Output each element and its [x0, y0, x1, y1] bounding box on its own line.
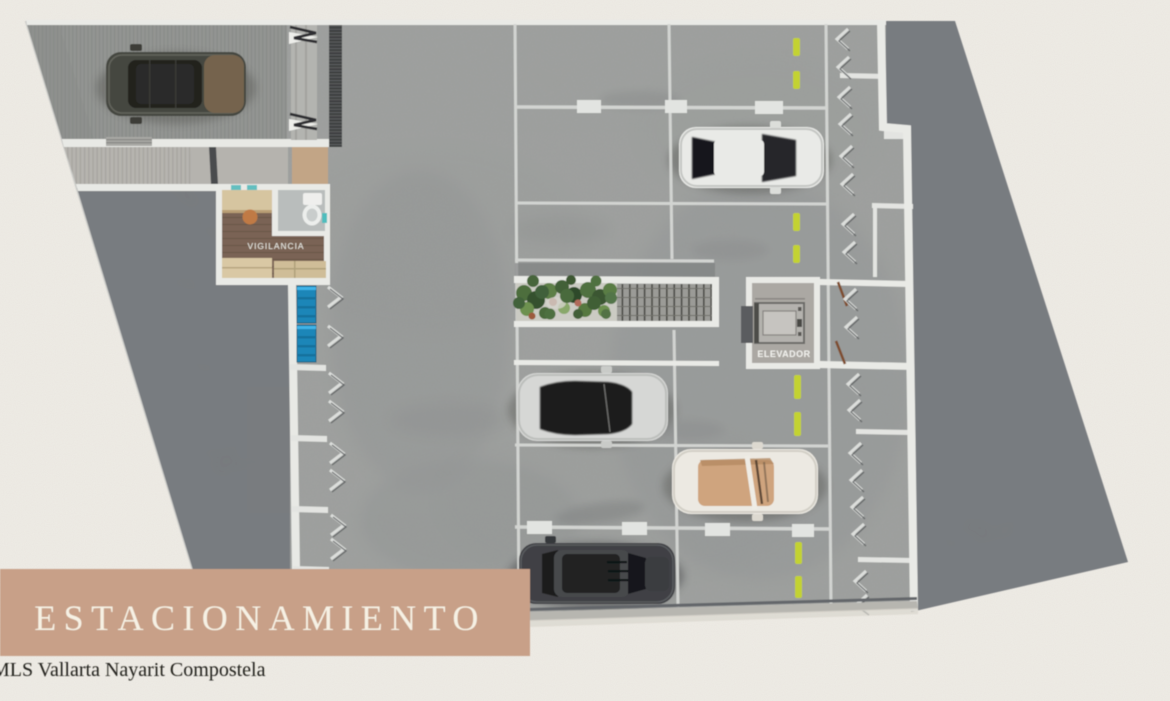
svg-text:ESTACIONAMIENTO: ESTACIONAMIENTO [34, 598, 485, 638]
svg-text:MLS Vallarta Nayarit Compostel: MLS Vallarta Nayarit Compostela [0, 659, 266, 681]
svg-text:ELEVADOR: ELEVADOR [757, 349, 810, 359]
svg-text:VIGILANCIA: VIGILANCIA [247, 241, 304, 251]
